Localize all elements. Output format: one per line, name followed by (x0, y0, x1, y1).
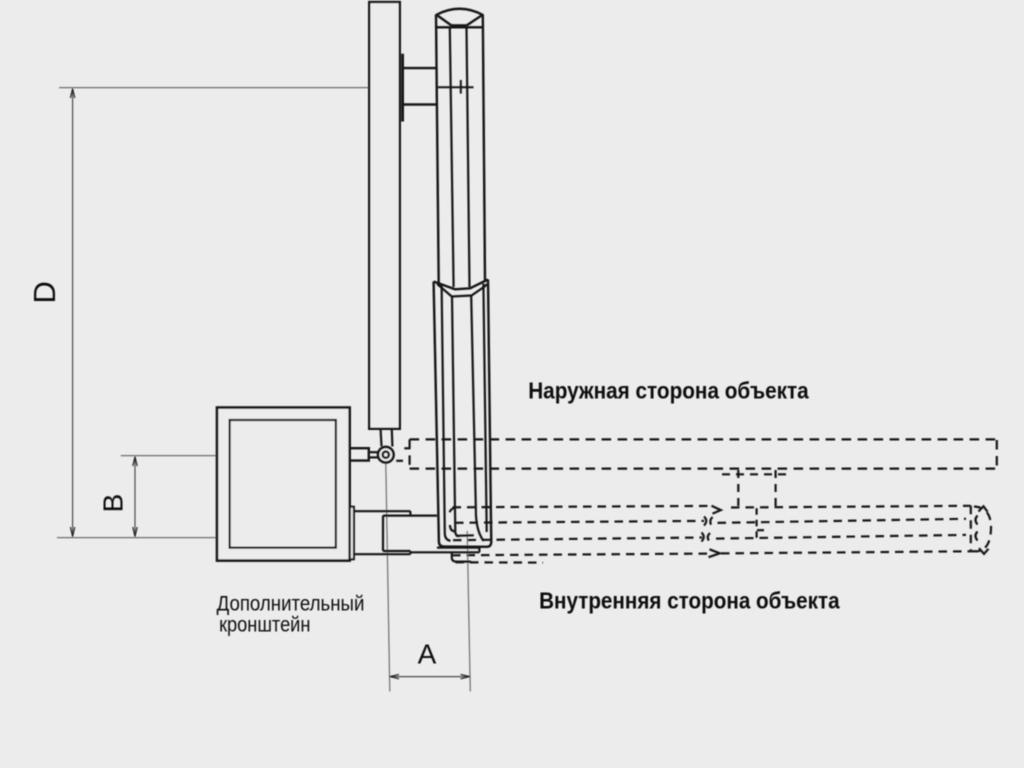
svg-text:кронштейн: кронштейн (219, 613, 310, 637)
svg-text:D: D (27, 281, 62, 303)
svg-text:Внутренняя сторона объекта: Внутренняя сторона объекта (539, 588, 840, 614)
svg-text:Наружная сторона объекта: Наружная сторона объекта (528, 378, 809, 404)
svg-text:A: A (418, 638, 437, 669)
svg-text:B: B (97, 494, 128, 513)
